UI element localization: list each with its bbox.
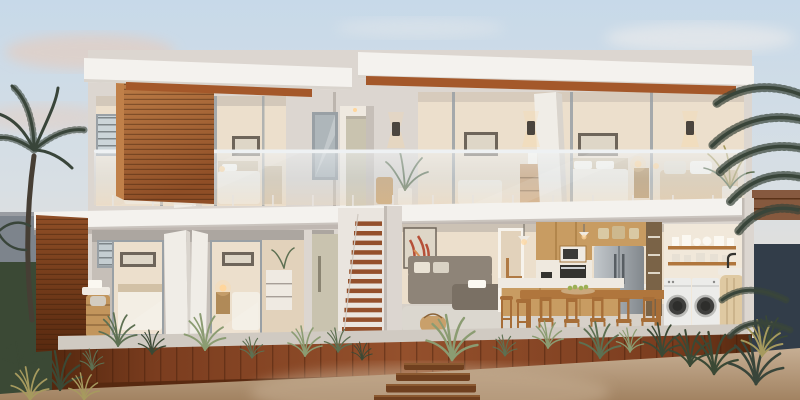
ground-bedroom-2: [210, 240, 262, 336]
house: [34, 50, 754, 352]
island-counter: [498, 278, 624, 288]
architectural-render: [0, 0, 800, 400]
washing-machine: [664, 278, 691, 330]
laundry-shelf: [668, 262, 736, 266]
scene-canvas: [0, 0, 800, 400]
timber-cladding-lower: [36, 215, 88, 352]
dryer: [692, 278, 719, 330]
open-door-ground-left: [164, 230, 188, 340]
wicker-desk-chair: [82, 280, 110, 337]
ground-bedroom-3: [262, 240, 304, 336]
entry-door-ground: [312, 234, 338, 334]
downlight: [353, 108, 357, 112]
fruit-platter: [561, 288, 595, 295]
ground-bedroom-1: [112, 240, 164, 336]
laundry-shelf: [668, 246, 736, 250]
door-handle-slot: [318, 256, 321, 292]
laundry: [664, 224, 746, 336]
dresser: [266, 270, 292, 310]
